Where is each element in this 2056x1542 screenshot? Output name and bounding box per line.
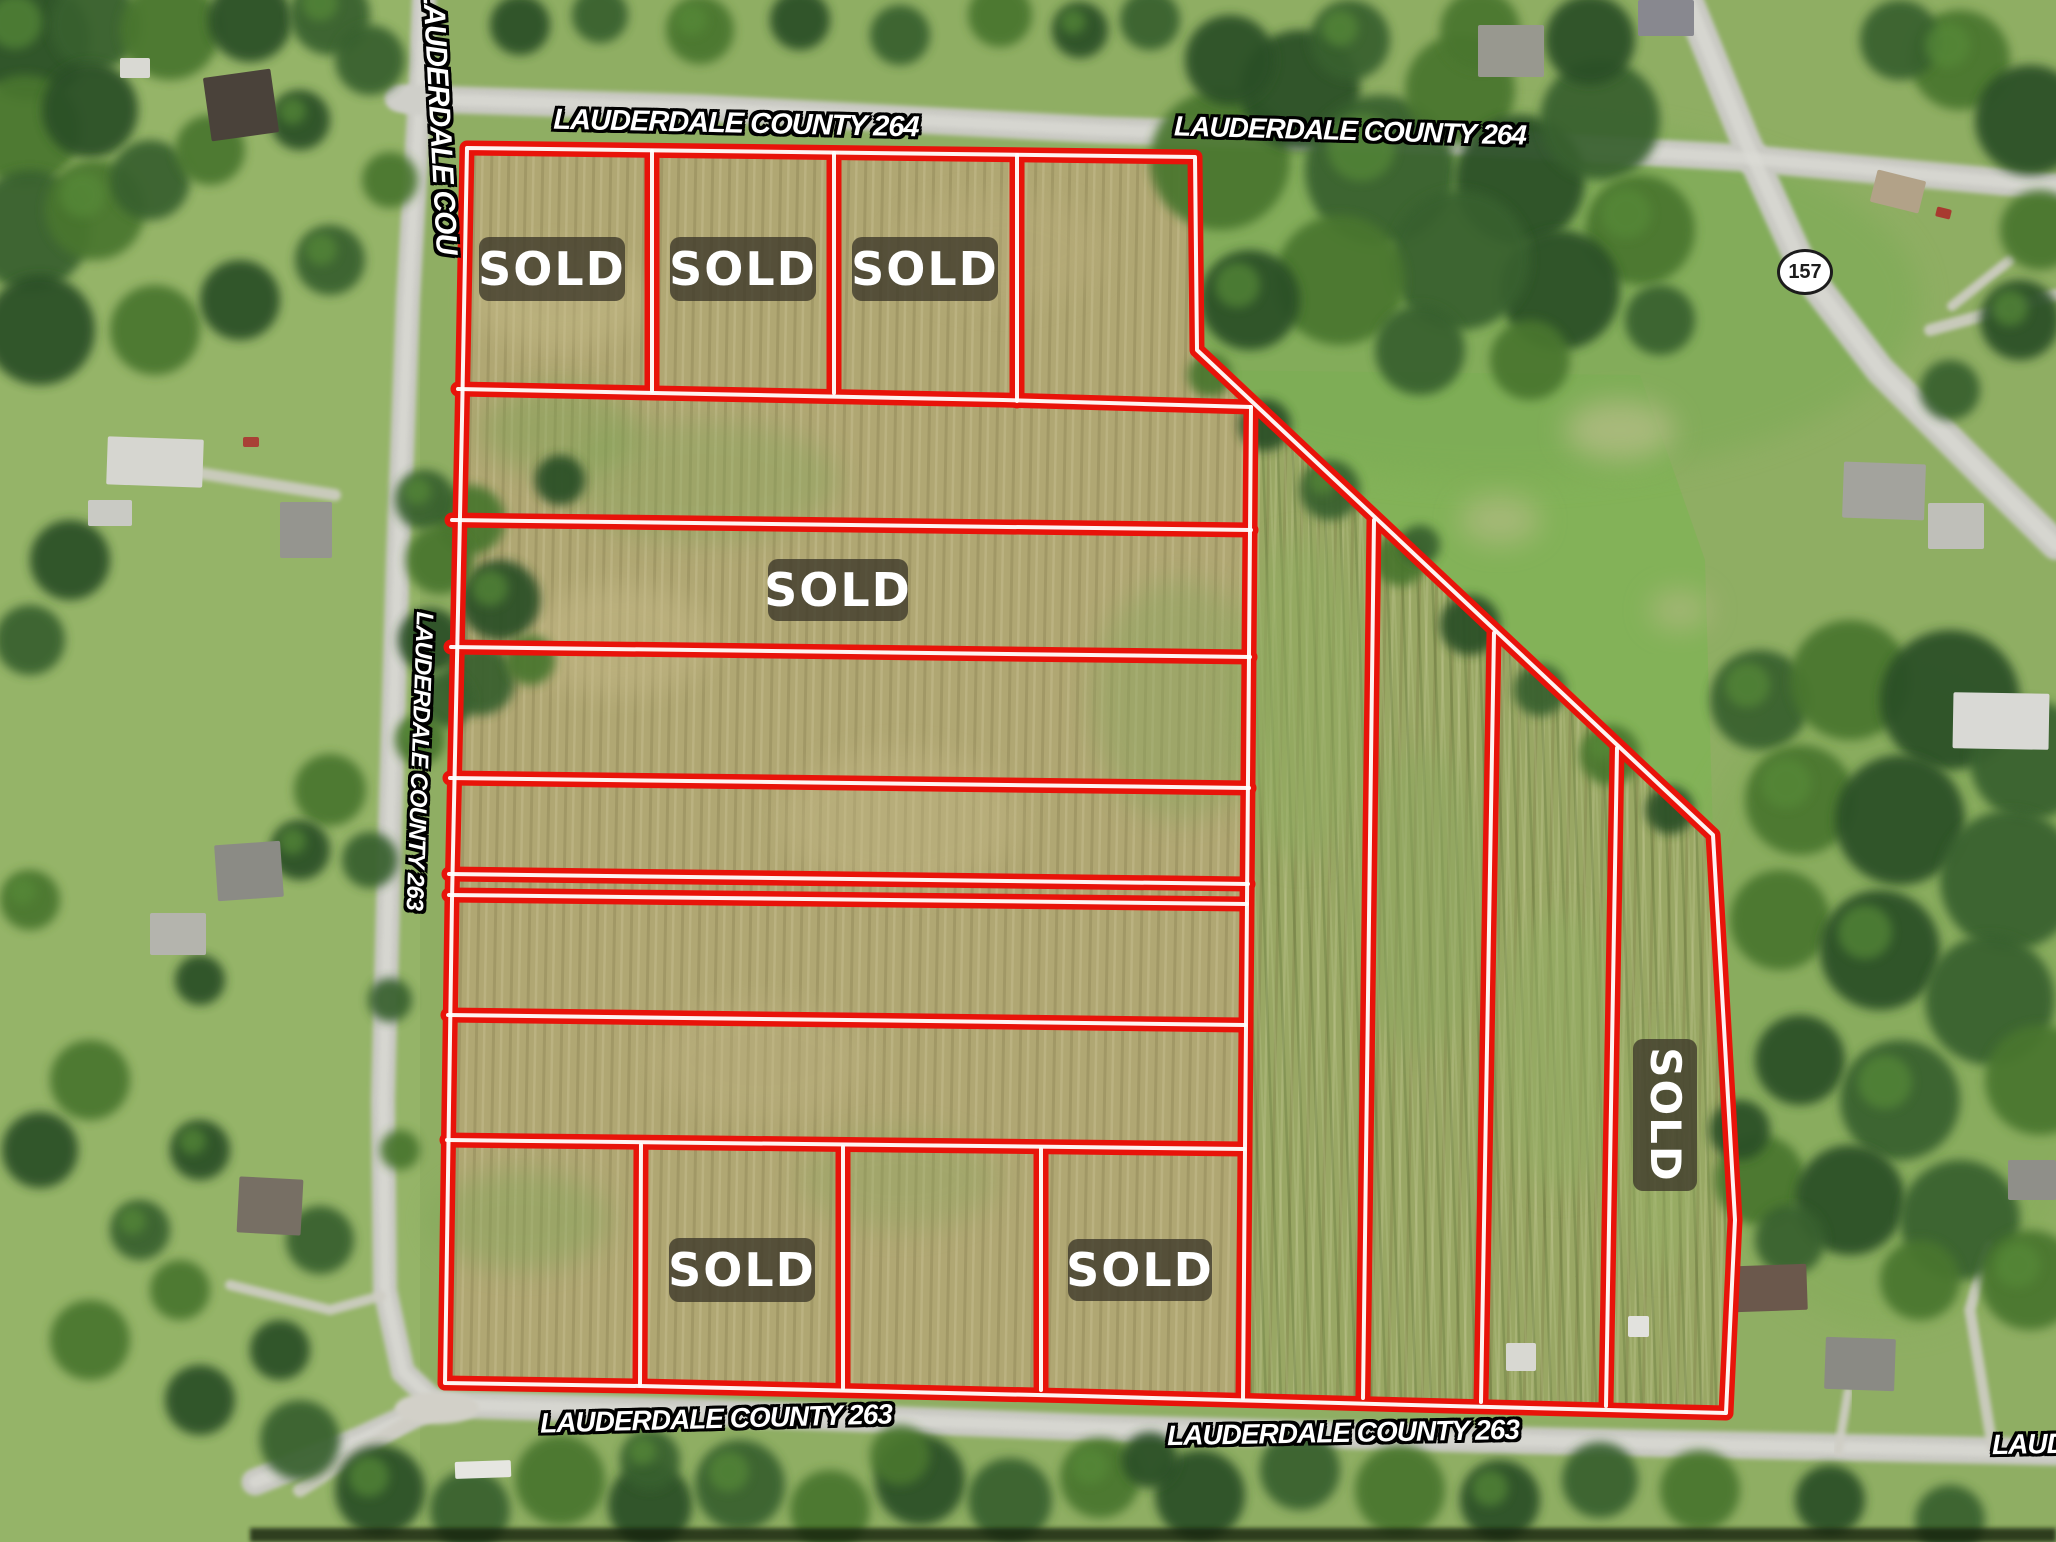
road-label-county-263-bottom-right-partial: LAUDERDALE COUNTY 263 <box>1992 1425 2056 1459</box>
highway-157-shield: 157 <box>1777 249 1833 295</box>
sold-badge-top-lot-1: SOLD <box>479 237 625 301</box>
sold-badge-bottom-lot-4: SOLD <box>1068 1239 1212 1301</box>
sold-badge-text: SOLD <box>669 246 817 292</box>
sold-badge-text: SOLD <box>764 567 912 613</box>
sold-badge-text: SOLD <box>668 1247 816 1293</box>
aerial-parcel-map: LAUDERDALE COUNTY 264 LAUDERDALE COUNTY … <box>0 0 2056 1542</box>
sold-badge-text: SOLD <box>1066 1247 1214 1293</box>
highway-157-number: 157 <box>1788 261 1821 284</box>
sold-badge-top-lot-2: SOLD <box>670 237 816 301</box>
sold-badge-text: SOLD <box>478 246 626 292</box>
sold-badge-text: SOLD <box>851 246 999 292</box>
sold-badge-top-lot-3: SOLD <box>852 237 998 301</box>
sold-badge-right-strip: SOLD <box>1633 1039 1697 1191</box>
sold-badge-text: SOLD <box>1644 1047 1686 1183</box>
road-label-county-263-bottom-east: LAUDERDALE COUNTY 263 <box>1167 1416 1519 1450</box>
sold-badge-middle-strip: SOLD <box>768 559 908 621</box>
road-label-county-264-top-west: LAUDERDALE COUNTY 264 <box>553 106 919 143</box>
aerial-basemap <box>0 0 2056 1542</box>
sold-badge-bottom-lot-2: SOLD <box>669 1238 815 1302</box>
